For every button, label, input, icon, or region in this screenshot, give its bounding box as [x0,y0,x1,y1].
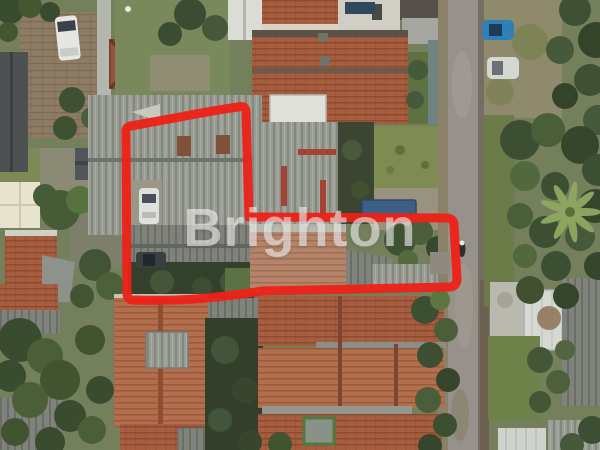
back-lawn [374,126,448,188]
white-car-roadside [487,57,519,79]
aerial-scene [0,0,600,450]
white-car-driveway [139,188,159,224]
rust-skylight [177,136,191,156]
white-flat-roof [270,95,326,125]
rust-skylight [216,135,230,154]
white-van [55,15,81,61]
blue-car [482,20,514,40]
aerial-photo: Brighton [0,0,600,450]
dark-car [136,252,166,268]
gray-shed [146,332,188,368]
green-framed-shed [304,418,334,444]
